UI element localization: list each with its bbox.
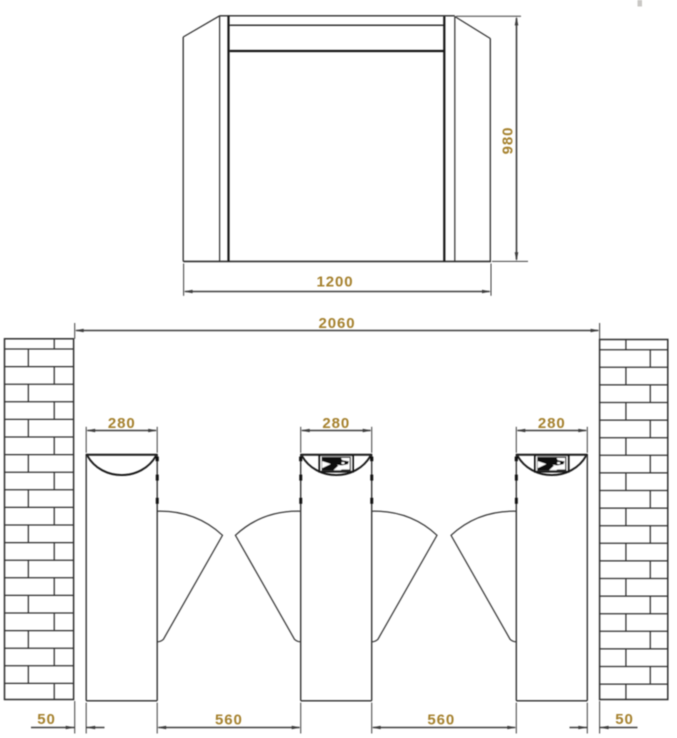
svg-text:1200: 1200 <box>317 273 354 290</box>
svg-text:280: 280 <box>322 415 350 432</box>
svg-text:280: 280 <box>538 415 566 432</box>
svg-text:980: 980 <box>499 127 516 155</box>
svg-text:50: 50 <box>37 711 56 728</box>
svg-text:560: 560 <box>215 711 243 728</box>
svg-text:50: 50 <box>615 711 634 728</box>
svg-text:560: 560 <box>427 711 455 728</box>
svg-text:2060: 2060 <box>319 315 356 332</box>
svg-text:280: 280 <box>108 415 136 432</box>
